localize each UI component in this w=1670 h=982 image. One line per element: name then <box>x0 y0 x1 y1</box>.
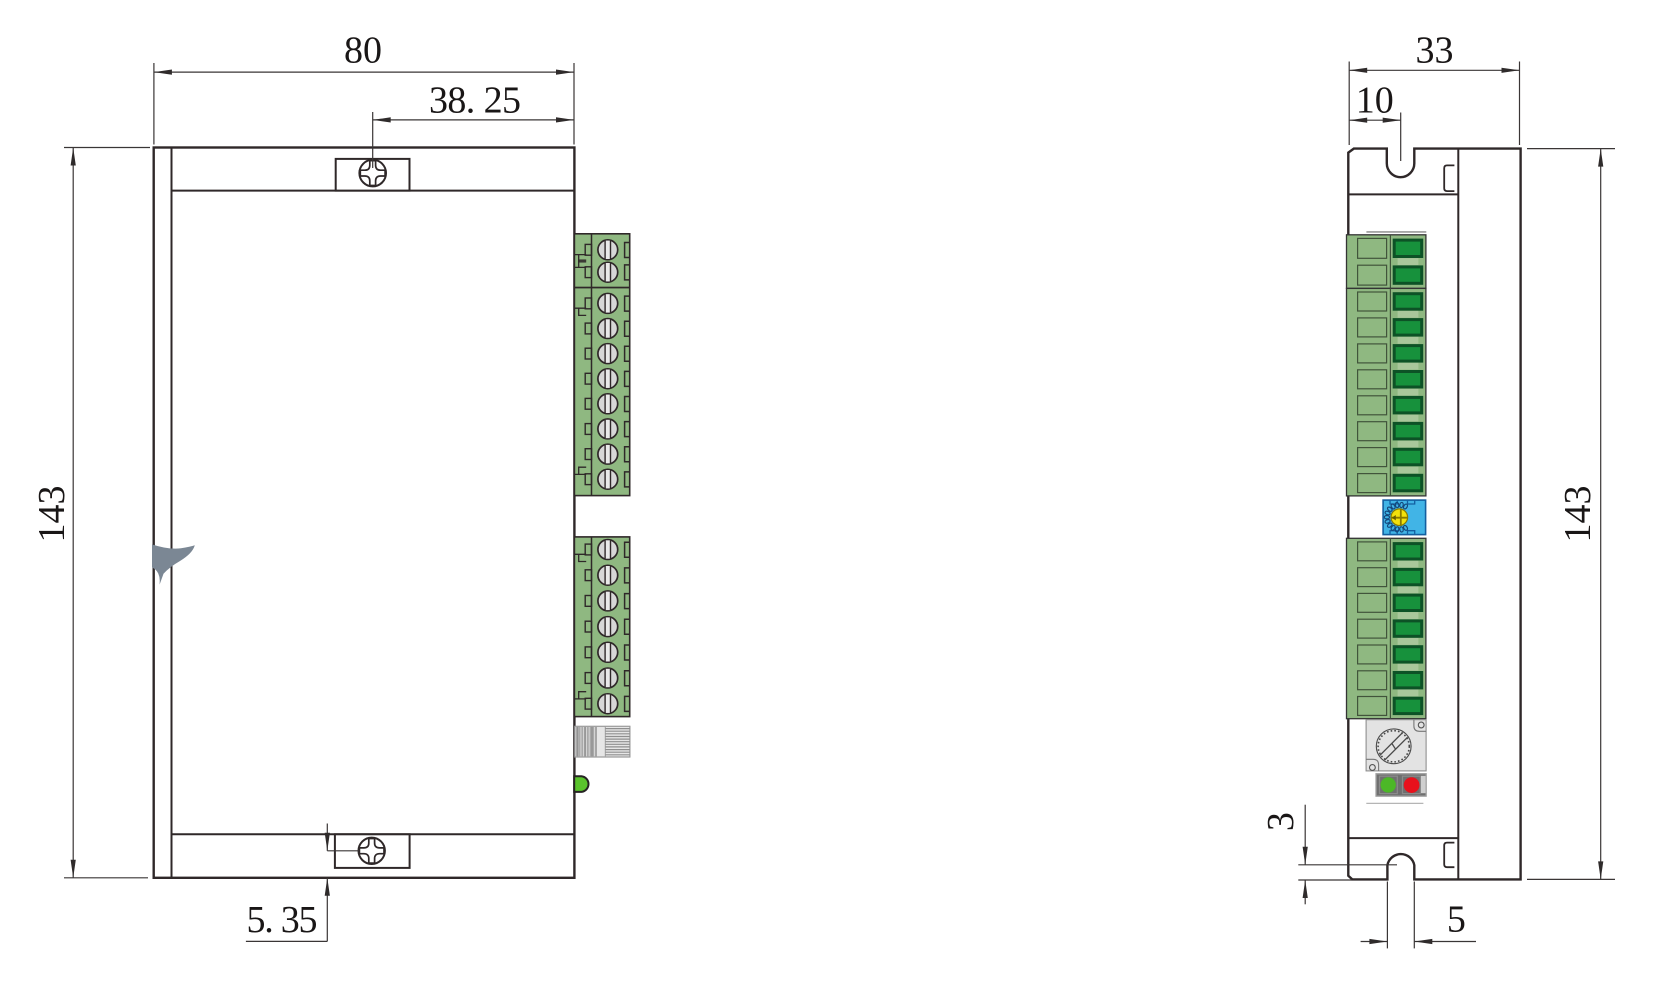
svg-text:5. 35: 5. 35 <box>247 899 318 941</box>
svg-text:143: 143 <box>1557 486 1599 543</box>
svg-text:33: 33 <box>1416 30 1454 72</box>
svg-text:143: 143 <box>31 486 73 543</box>
svg-text:3: 3 <box>1260 812 1302 831</box>
svg-text:80: 80 <box>344 30 382 72</box>
svg-text:10: 10 <box>1356 80 1394 122</box>
svg-text:5: 5 <box>1447 899 1466 941</box>
svg-text:38. 25: 38. 25 <box>429 80 521 122</box>
